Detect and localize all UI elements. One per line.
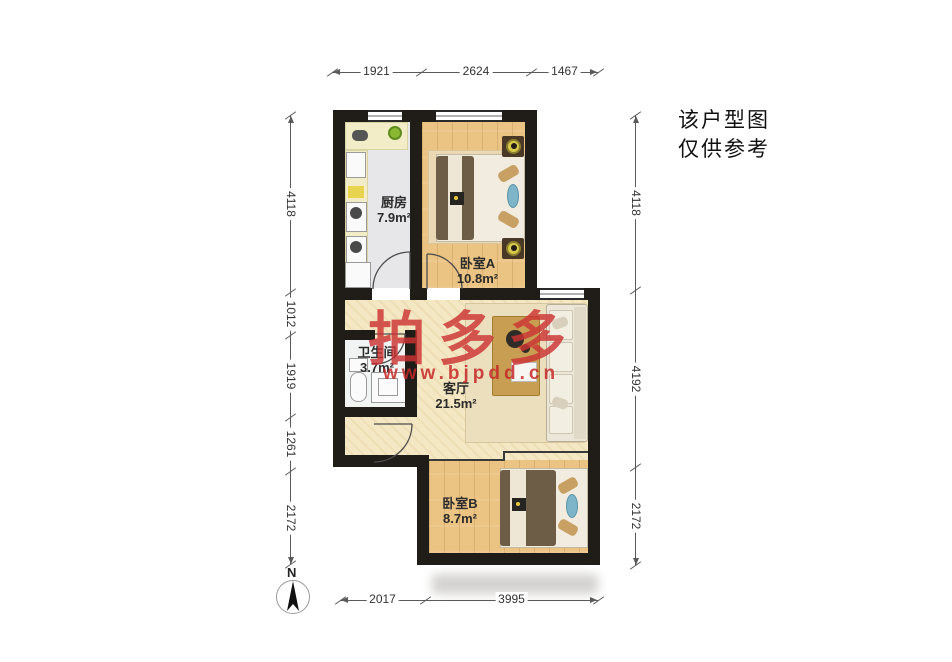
dim-value: 2172 [284, 501, 298, 534]
dim-value: 2624 [460, 64, 493, 78]
dim-value: 4118 [284, 188, 298, 220]
dim-value: 4118 [629, 187, 643, 219]
room-area: 8.7m² [430, 511, 490, 526]
room-label-living: 客厅 21.5m² [425, 381, 487, 411]
dim-value: 2172 [629, 500, 643, 533]
dim-right-1: 4118 [635, 115, 636, 290]
dim-value: 1467 [548, 64, 581, 78]
floorplan-page: 厨房 7.9m² 卧室A 10.8m² 卫生间 3.7m² 客厅 21.5m² … [0, 0, 952, 662]
room-area: 10.8m² [440, 271, 515, 286]
dim-left-1: 4118 [290, 115, 291, 292]
dim-right-2: 4192 [635, 290, 636, 467]
dim-value: 4192 [629, 362, 643, 395]
disclaimer-line2: 仅供参考 [678, 135, 770, 164]
room-label-bedroom-b: 卧室B 8.7m² [430, 496, 490, 526]
dim-left-5: 2172 [290, 471, 291, 564]
watermark-url: www.bjpdd.cn [383, 363, 559, 385]
dim-bottom-2: 3995 [425, 600, 598, 601]
kitchen-door-arc [373, 252, 410, 289]
dim-top-1: 1921 [332, 72, 421, 73]
dim-arrow [590, 69, 597, 75]
dim-arrow [633, 558, 639, 565]
dim-value: 2017 [366, 592, 399, 606]
dim-arrow [633, 116, 639, 123]
dim-value: 1921 [360, 64, 393, 78]
room-area: 21.5m² [425, 396, 487, 411]
dim-arrow [288, 116, 294, 123]
room-name: 卧室A [440, 256, 515, 271]
dim-arrow [333, 69, 340, 75]
dim-bottom-1: 2017 [340, 600, 425, 601]
room-label-bedroom-a: 卧室A 10.8m² [440, 256, 515, 286]
blurred-smudge [432, 574, 598, 594]
room-name: 卧室B [430, 496, 490, 511]
entry-door-arc [374, 424, 412, 462]
dim-left-4: 1261 [290, 417, 291, 471]
dim-left-2: 1012 [290, 292, 291, 335]
dim-arrow [288, 557, 294, 564]
disclaimer-line1: 该户型图 [678, 106, 770, 135]
dim-arrow [590, 597, 597, 603]
dim-value: 1919 [284, 360, 298, 393]
dim-top-3: 1467 [531, 72, 598, 73]
dim-value: 1012 [284, 297, 298, 330]
room-label-kitchen: 厨房 7.9m² [364, 195, 424, 225]
room-name: 厨房 [364, 195, 424, 210]
dim-right-3: 2172 [635, 467, 636, 565]
dim-left-3: 1919 [290, 335, 291, 417]
room-area: 7.9m² [364, 210, 424, 225]
dim-value: 3995 [495, 592, 528, 606]
dim-value: 1261 [284, 428, 298, 461]
compass-needle-icon [276, 578, 310, 616]
disclaimer-text: 该户型图 仅供参考 [678, 106, 770, 164]
dim-arrow [341, 597, 348, 603]
dim-top-2: 2624 [421, 72, 531, 73]
